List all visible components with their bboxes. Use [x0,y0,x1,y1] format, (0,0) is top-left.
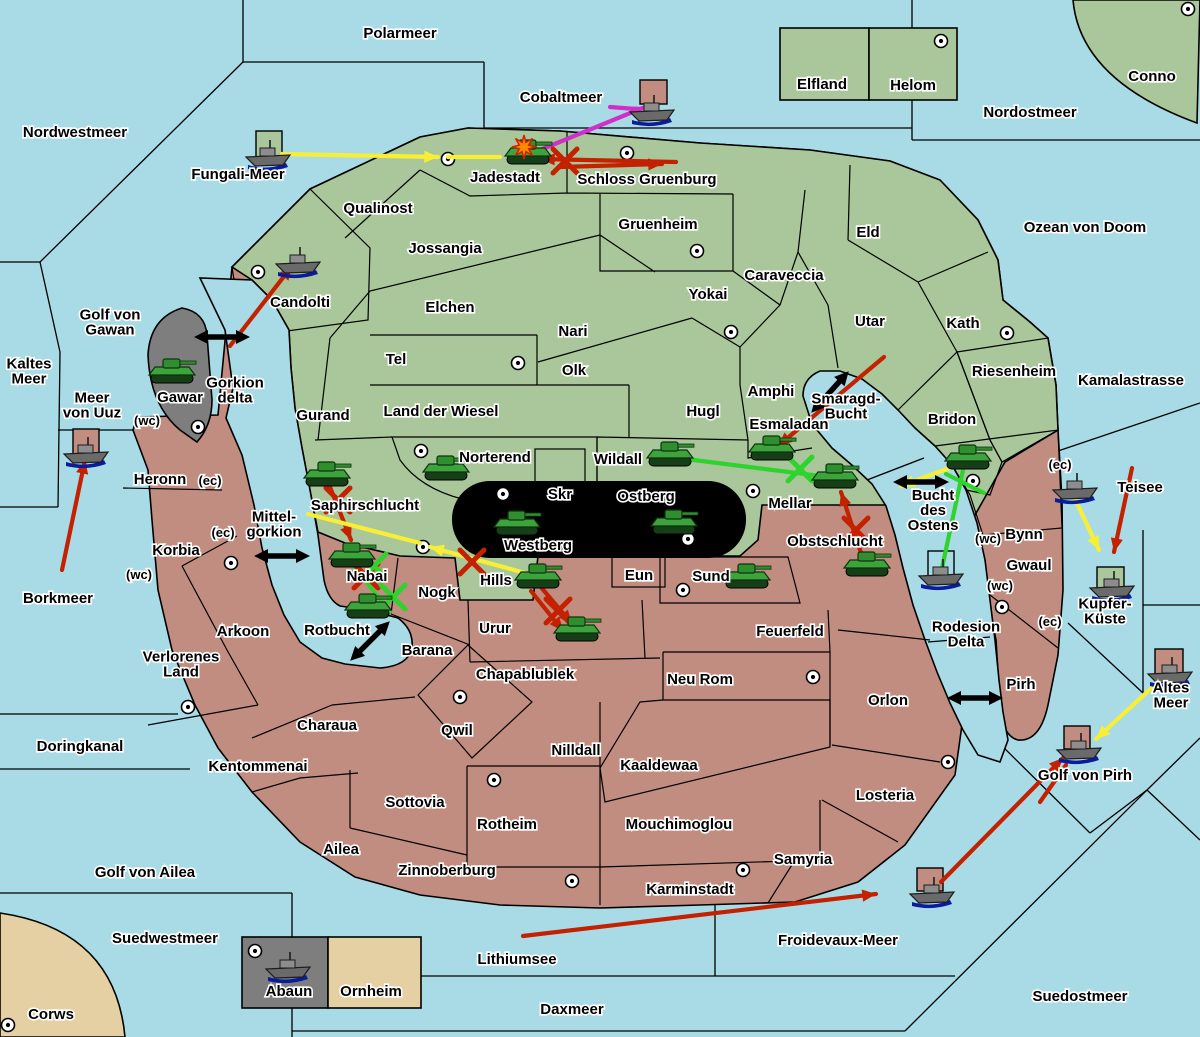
territory-label: Gawar [157,389,203,406]
sea-label: Fungali-Meer [191,166,285,183]
territory-label: Caraveccia [744,267,824,284]
sea-label: Nordwestmeer [23,124,127,141]
territory-label: Eun [625,567,653,584]
territory-label: Ornheim [340,983,402,1000]
order-arrow-magenta [610,107,636,109]
sea-label: Cobaltmeer [520,89,603,106]
sea-label: Teisee [1117,479,1163,496]
territory-label: Bridon [928,411,976,428]
sea-label: Polarmeer [363,25,437,42]
supply-center-icon [677,584,690,597]
sea-label: Kupfer-Küste [1078,596,1131,628]
territory-label: Elfland [797,76,847,93]
territory-label: Saphirschlucht [311,497,419,514]
supply-center-icon [1182,3,1195,16]
territory-label: Nari [558,323,587,340]
territory-label: Pirh [1006,676,1035,693]
territory-label: Ostberg [617,488,675,505]
supply-center-icon [415,445,428,458]
territory-label: Heronn [134,471,187,488]
sea-label: Doringkanal [37,738,124,755]
territory-label: Helom [890,77,936,94]
territory-label: Barana [402,642,454,659]
territory-label: Olk [562,362,587,379]
supply-center-icon [942,756,955,769]
territory-label: Bynn [1005,526,1043,543]
sea-label: Kamalastrasse [1078,372,1184,389]
territory-label: Zinnoberburg [398,862,496,879]
territory-label: Kaaldewaa [620,757,698,774]
territory-label: Abaun [266,983,313,1000]
territory-label: Nabai [347,568,388,585]
explosion-icon [512,135,536,159]
territory-label: Mellar [768,495,812,512]
territory-label: Conno [1128,68,1175,85]
territory-label: Obstschlucht [787,533,883,550]
coast-tag: (ec) [211,525,234,540]
sea-label: Ozean von Doom [1024,219,1147,236]
territory-label: Elchen [425,299,474,316]
sea-label: Suedwestmeer [112,930,218,947]
territory-label: Kath [946,315,979,332]
sea-label: Lithiumsee [477,951,556,968]
supply-center-icon [747,485,760,498]
supply-center-icon [691,245,704,258]
coast-tag: (wc) [987,578,1013,593]
territory-label: Westberg [504,537,572,554]
supply-center-icon [192,421,205,434]
territory-label: Losteria [856,787,915,804]
territory-label: Neu Rom [667,671,733,688]
territory-label: Qualinost [343,200,412,217]
coast-tag: (wc) [126,567,152,582]
coast-tag: (wc) [975,531,1001,546]
sea-label: Borkmeer [23,590,93,607]
territory-label: Gurand [296,407,349,424]
supply-center-icon [225,557,238,570]
territory-label: Mouchimoglou [626,816,733,833]
territory-label: Jossangia [408,240,482,257]
territory-label: Rotheim [477,816,537,833]
territory-label: Nilldall [551,742,600,759]
sea-label: Daxmeer [540,1001,604,1018]
sea-label: Suedostmeer [1032,988,1127,1005]
supply-center-icon [996,601,1009,614]
coast-tag: (wc) [134,413,160,428]
territory-label: Charaua [297,717,358,734]
game-map: PolarmeerNordwestmeerCobaltmeerFungali-M… [0,0,1200,1037]
sea-label: Nordostmeer [983,104,1077,121]
territory-label: Sund [692,568,730,585]
supply-center-icon [497,488,510,501]
map-canvas: PolarmeerNordwestmeerCobaltmeerFungali-M… [0,0,1200,1037]
territory-label: Sottovia [385,794,445,811]
territory-label: Qwil [441,722,473,739]
supply-center-icon [737,864,750,877]
supply-center-icon [935,35,948,48]
territory-label: Orlon [868,692,908,709]
supply-center-icon [252,266,265,279]
sea-label: Froidevaux-Meer [778,932,898,949]
supply-center-icon [621,147,634,160]
territory-label: Yokai [689,286,728,303]
territory-label: Gwaul [1006,557,1051,574]
territory-label: Chapablublek [476,666,575,683]
territory-label: Riesenheim [972,363,1056,380]
territory-label: Jadestadt [470,169,540,186]
sea-label: Golf von Pirh [1038,767,1132,784]
coast-tag: (ec) [198,473,221,488]
territory-label: Korbia [152,542,200,559]
territory-label: Wildall [594,451,642,468]
supply-center-icon [725,326,738,339]
territory-label: Norterend [459,449,531,466]
supply-center-icon [488,774,501,787]
territory-label: Gruenheim [618,216,697,233]
supply-center-icon [454,691,467,704]
territory-label: Candolti [270,294,330,311]
supply-center-icon [1001,327,1014,340]
supply-center-icon [807,671,820,684]
territory-label: Esmaladan [749,416,828,433]
territory-label: Arkoon [217,623,270,640]
coast-tag: (ec) [1048,457,1071,472]
coast-tag: (ec) [1038,614,1061,629]
territory-label: Urur [479,620,511,637]
territory-label: Karminstadt [646,881,734,898]
territory-label: Samyria [774,851,833,868]
sea-label: Mittel-gorkion [247,509,302,541]
territory-label: Schloss Gruenburg [577,171,716,188]
territory-label: Nogk [418,584,456,601]
supply-center-icon [2,1019,15,1032]
territory-label: Amphi [748,383,795,400]
territory-label: Feuerfeld [756,623,824,640]
territory-label: Corws [28,1006,74,1023]
territory-label: Tel [386,351,407,368]
supply-center-icon [566,875,579,888]
supply-center-icon [249,945,262,958]
territory-label: Hills [480,572,512,589]
territory-label: Kentommenai [208,758,307,775]
territory-label: Hugl [686,403,719,420]
territory-label: Land der Wiesel [384,403,499,420]
sea-label: Rotbucht [304,622,370,639]
supply-center-icon [182,701,195,714]
sea-label: AltesMeer [1153,680,1190,712]
territory-label: Utar [855,313,885,330]
supply-center-icon [512,357,525,370]
territory-label: Ailea [323,841,360,858]
territory-label: Eld [856,224,879,241]
sea-label: Golf vonGawan [80,307,141,339]
territory-label: Skr [548,486,572,503]
sea-label: Golf von Ailea [95,864,196,881]
sea-label: KaltesMeer [6,356,51,388]
